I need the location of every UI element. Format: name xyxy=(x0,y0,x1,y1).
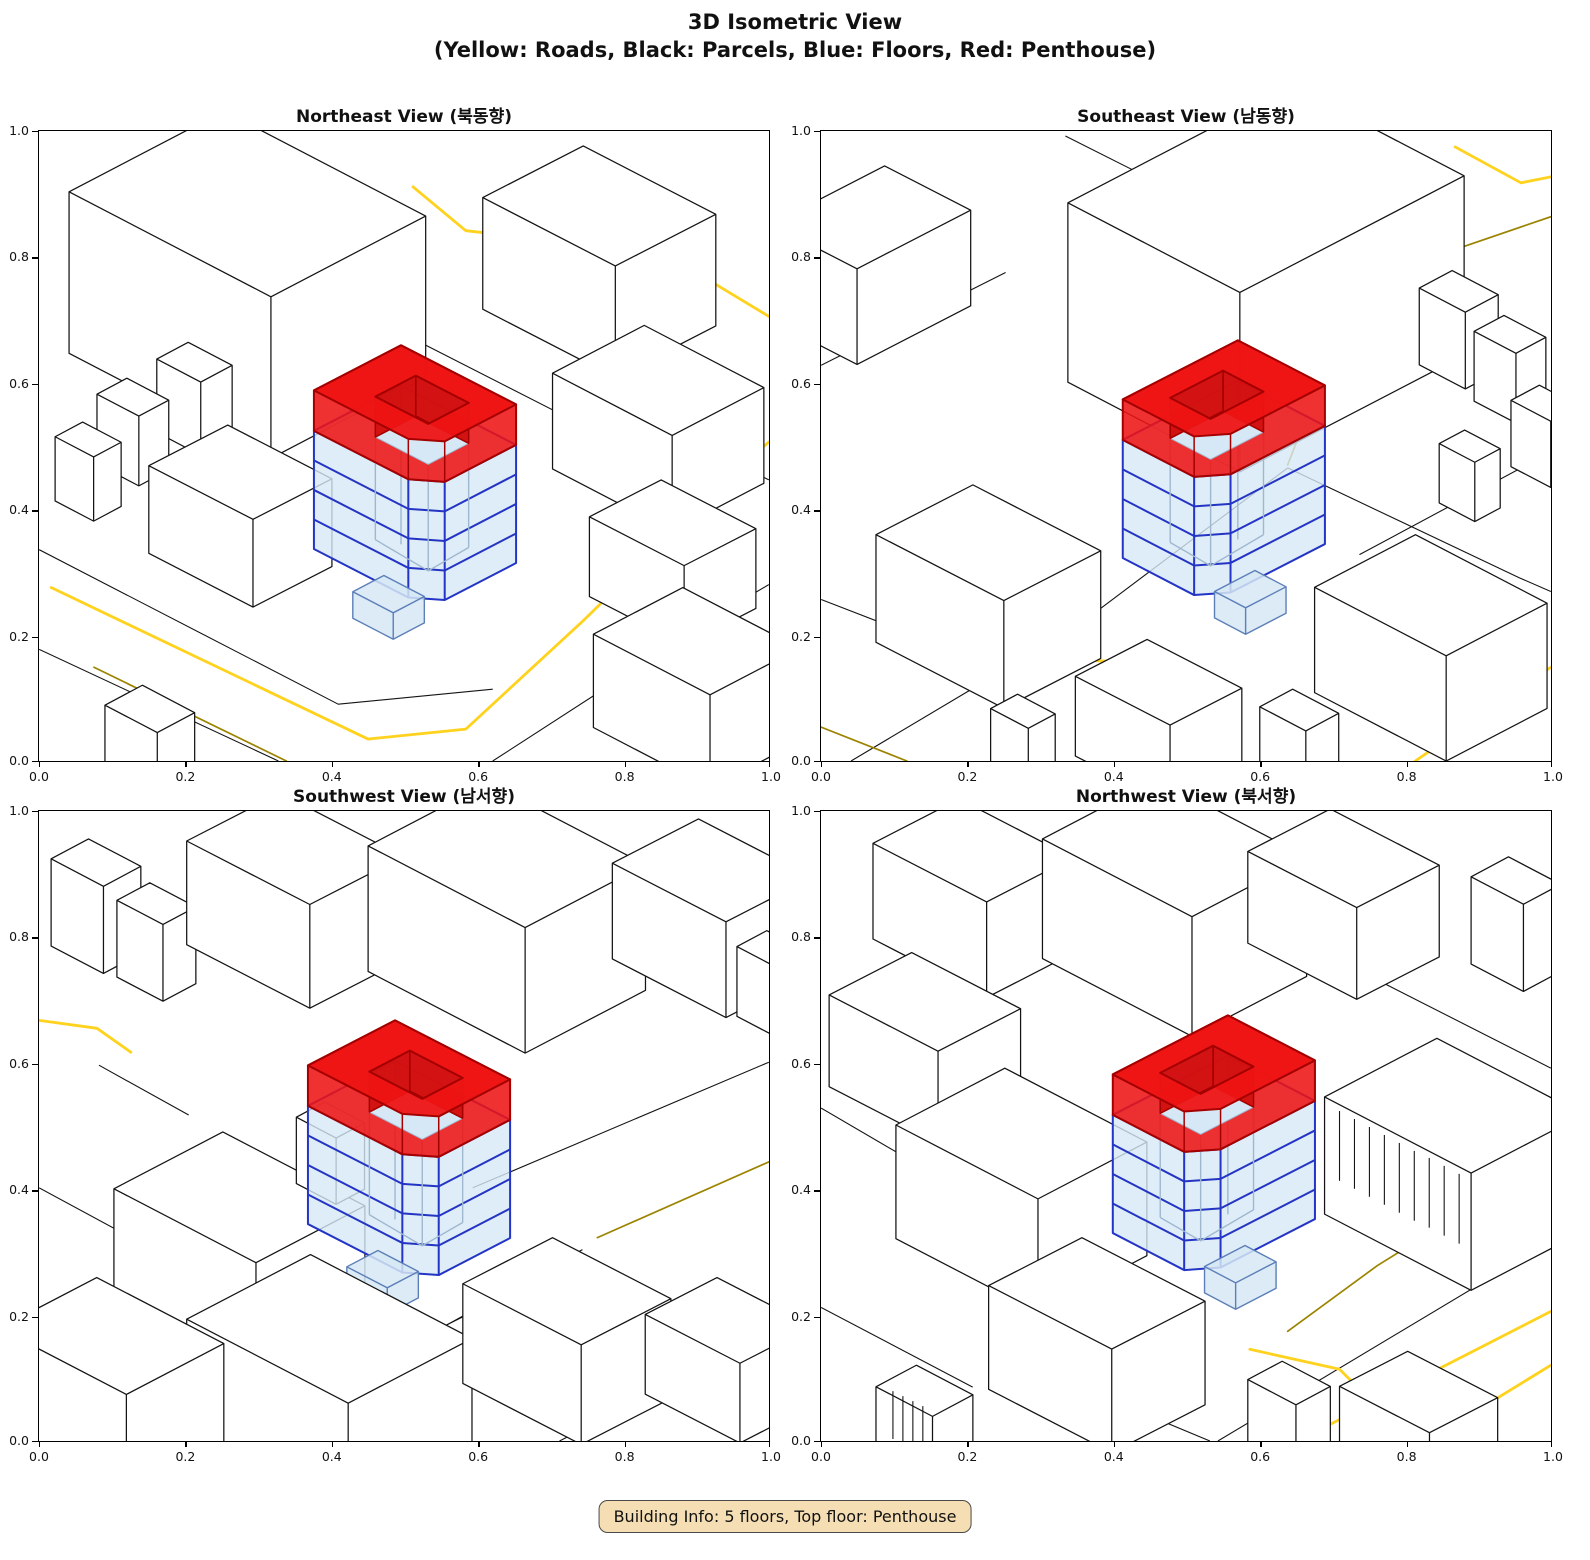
x-axis-tick-label: 0.2 xyxy=(952,1449,982,1464)
x-axis-tick-label: 0.0 xyxy=(24,1449,54,1464)
scene-southeast xyxy=(821,131,1551,761)
y-axis-tick-label: 1.0 xyxy=(0,803,29,818)
subplot-northeast: Northeast View (북동향) xyxy=(38,130,770,762)
y-axis-tick-label: 0.0 xyxy=(781,753,811,768)
subplot-title-southeast: Southeast View (남동향) xyxy=(820,102,1552,127)
x-axis-tick-label: 0.6 xyxy=(1245,1449,1275,1464)
x-axis-tick-mark xyxy=(625,761,626,767)
x-axis-tick-mark xyxy=(185,761,186,767)
building-instance xyxy=(1123,340,1325,634)
x-axis-tick-mark xyxy=(1551,1441,1552,1447)
y-axis-tick-mark xyxy=(32,384,38,385)
x-axis-tick-mark xyxy=(1407,761,1408,767)
x-axis-tick-mark xyxy=(332,1441,333,1447)
x-axis-tick-mark xyxy=(478,1441,479,1447)
x-axis-tick-mark xyxy=(332,761,333,767)
x-axis-tick-label: 0.4 xyxy=(1099,1449,1129,1464)
building-instance xyxy=(1113,1015,1315,1309)
y-axis-tick-mark xyxy=(32,257,38,258)
y-axis-tick-label: 0.2 xyxy=(0,1309,29,1324)
y-axis-tick-label: 0.0 xyxy=(781,1433,811,1448)
y-axis-tick-label: 0.6 xyxy=(781,376,811,391)
y-axis-tick-label: 0.4 xyxy=(0,1182,29,1197)
y-axis-tick-label: 1.0 xyxy=(781,123,811,138)
subplot-northwest: Northwest View (북서향) xyxy=(820,810,1552,1442)
x-axis-tick-label: 0.2 xyxy=(170,1449,200,1464)
x-axis-tick-mark xyxy=(821,761,822,767)
foreground-blocks xyxy=(105,588,769,761)
y-axis-tick-label: 0.2 xyxy=(0,629,29,644)
subplot-southwest: Southwest View (남서향) xyxy=(38,810,770,1442)
x-axis-tick-label: 0.0 xyxy=(806,1449,836,1464)
x-axis-tick-mark xyxy=(1260,1441,1261,1447)
y-axis-tick-label: 0.8 xyxy=(0,249,29,264)
x-axis-tick-mark xyxy=(1114,761,1115,767)
subplot-southeast: Southeast View (남동향) xyxy=(820,130,1552,762)
x-axis-tick-label: 0.8 xyxy=(610,1449,640,1464)
y-axis-tick-mark xyxy=(814,510,820,511)
x-axis-tick-label: 1.0 xyxy=(756,1449,786,1464)
y-axis-tick-mark xyxy=(814,384,820,385)
x-axis-tick-mark xyxy=(967,761,968,767)
y-axis-tick-mark xyxy=(32,1190,38,1191)
x-axis-tick-mark xyxy=(967,1441,968,1447)
y-axis-tick-mark xyxy=(814,811,820,812)
subplot-title-northwest: Northwest View (북서향) xyxy=(820,782,1552,807)
subplot-title-southwest: Southwest View (남서향) xyxy=(38,782,770,807)
x-axis-tick-mark xyxy=(1551,761,1552,767)
y-axis-tick-label: 0.4 xyxy=(0,502,29,517)
y-axis-tick-label: 0.4 xyxy=(781,502,811,517)
y-axis-tick-label: 0.6 xyxy=(781,1056,811,1071)
scene-northeast xyxy=(39,131,769,761)
axes-frame-southeast: 0.00.20.40.60.81.00.00.20.40.60.81.0 xyxy=(820,130,1552,762)
y-axis-tick-mark xyxy=(814,1064,820,1065)
y-axis-tick-mark xyxy=(814,257,820,258)
y-axis-tick-label: 0.8 xyxy=(781,929,811,944)
y-axis-tick-mark xyxy=(814,937,820,938)
y-axis-tick-label: 0.0 xyxy=(0,1433,29,1448)
y-axis-tick-mark xyxy=(814,1441,820,1442)
y-axis-tick-label: 0.0 xyxy=(0,753,29,768)
building-info-box: Building Info: 5 floors, Top floor: Pent… xyxy=(599,1500,972,1533)
x-axis-tick-mark xyxy=(821,1441,822,1447)
y-axis-tick-mark xyxy=(32,1441,38,1442)
x-axis-tick-mark xyxy=(185,1441,186,1447)
y-axis-tick-label: 1.0 xyxy=(0,123,29,138)
x-axis-tick-mark xyxy=(478,761,479,767)
y-axis-tick-mark xyxy=(32,1317,38,1318)
y-axis-tick-mark xyxy=(32,1064,38,1065)
y-axis-tick-label: 0.6 xyxy=(0,376,29,391)
y-axis-tick-mark xyxy=(814,131,820,132)
x-axis-tick-mark xyxy=(1260,761,1261,767)
y-axis-tick-mark xyxy=(32,811,38,812)
y-axis-tick-label: 0.4 xyxy=(781,1182,811,1197)
figure: 3D Isometric View (Yellow: Roads, Black:… xyxy=(0,0,1590,1560)
y-axis-tick-mark xyxy=(32,937,38,938)
x-axis-tick-label: 0.4 xyxy=(317,1449,347,1464)
x-axis-tick-mark xyxy=(625,1441,626,1447)
y-axis-tick-label: 0.6 xyxy=(0,1056,29,1071)
scene-southwest xyxy=(39,811,769,1441)
x-axis-tick-mark xyxy=(39,761,40,767)
y-axis-tick-mark xyxy=(32,761,38,762)
x-axis-tick-mark xyxy=(769,1441,770,1447)
y-axis-tick-label: 0.2 xyxy=(781,1309,811,1324)
y-axis-tick-mark xyxy=(32,510,38,511)
axes-frame-northeast: 0.00.20.40.60.81.00.00.20.40.60.81.0 xyxy=(38,130,770,762)
figure-title: 3D Isometric View xyxy=(0,8,1590,36)
figure-subtitle-legend: (Yellow: Roads, Black: Parcels, Blue: Fl… xyxy=(0,36,1590,64)
y-axis-tick-mark xyxy=(814,637,820,638)
subplot-title-northeast: Northeast View (북동향) xyxy=(38,102,770,127)
x-axis-tick-mark xyxy=(769,761,770,767)
y-axis-tick-label: 0.8 xyxy=(0,929,29,944)
x-axis-tick-mark xyxy=(39,1441,40,1447)
y-axis-tick-mark xyxy=(814,1317,820,1318)
y-axis-tick-mark xyxy=(814,761,820,762)
x-axis-tick-mark xyxy=(1114,1441,1115,1447)
axes-frame-northwest: 0.00.20.40.60.81.00.00.20.40.60.81.0 xyxy=(820,810,1552,1442)
x-axis-tick-label: 1.0 xyxy=(1538,1449,1568,1464)
building-instance xyxy=(314,345,516,639)
y-axis-tick-mark xyxy=(814,1190,820,1191)
y-axis-tick-label: 0.2 xyxy=(781,629,811,644)
scene-northwest xyxy=(821,811,1551,1441)
axes-frame-southwest: 0.00.20.40.60.81.00.00.20.40.60.81.0 xyxy=(38,810,770,1442)
y-axis-tick-mark xyxy=(32,131,38,132)
y-axis-tick-mark xyxy=(32,637,38,638)
y-axis-tick-label: 0.8 xyxy=(781,249,811,264)
x-axis-tick-label: 0.6 xyxy=(463,1449,493,1464)
y-axis-tick-label: 1.0 xyxy=(781,803,811,818)
x-axis-tick-label: 0.8 xyxy=(1392,1449,1422,1464)
x-axis-tick-mark xyxy=(1407,1441,1408,1447)
